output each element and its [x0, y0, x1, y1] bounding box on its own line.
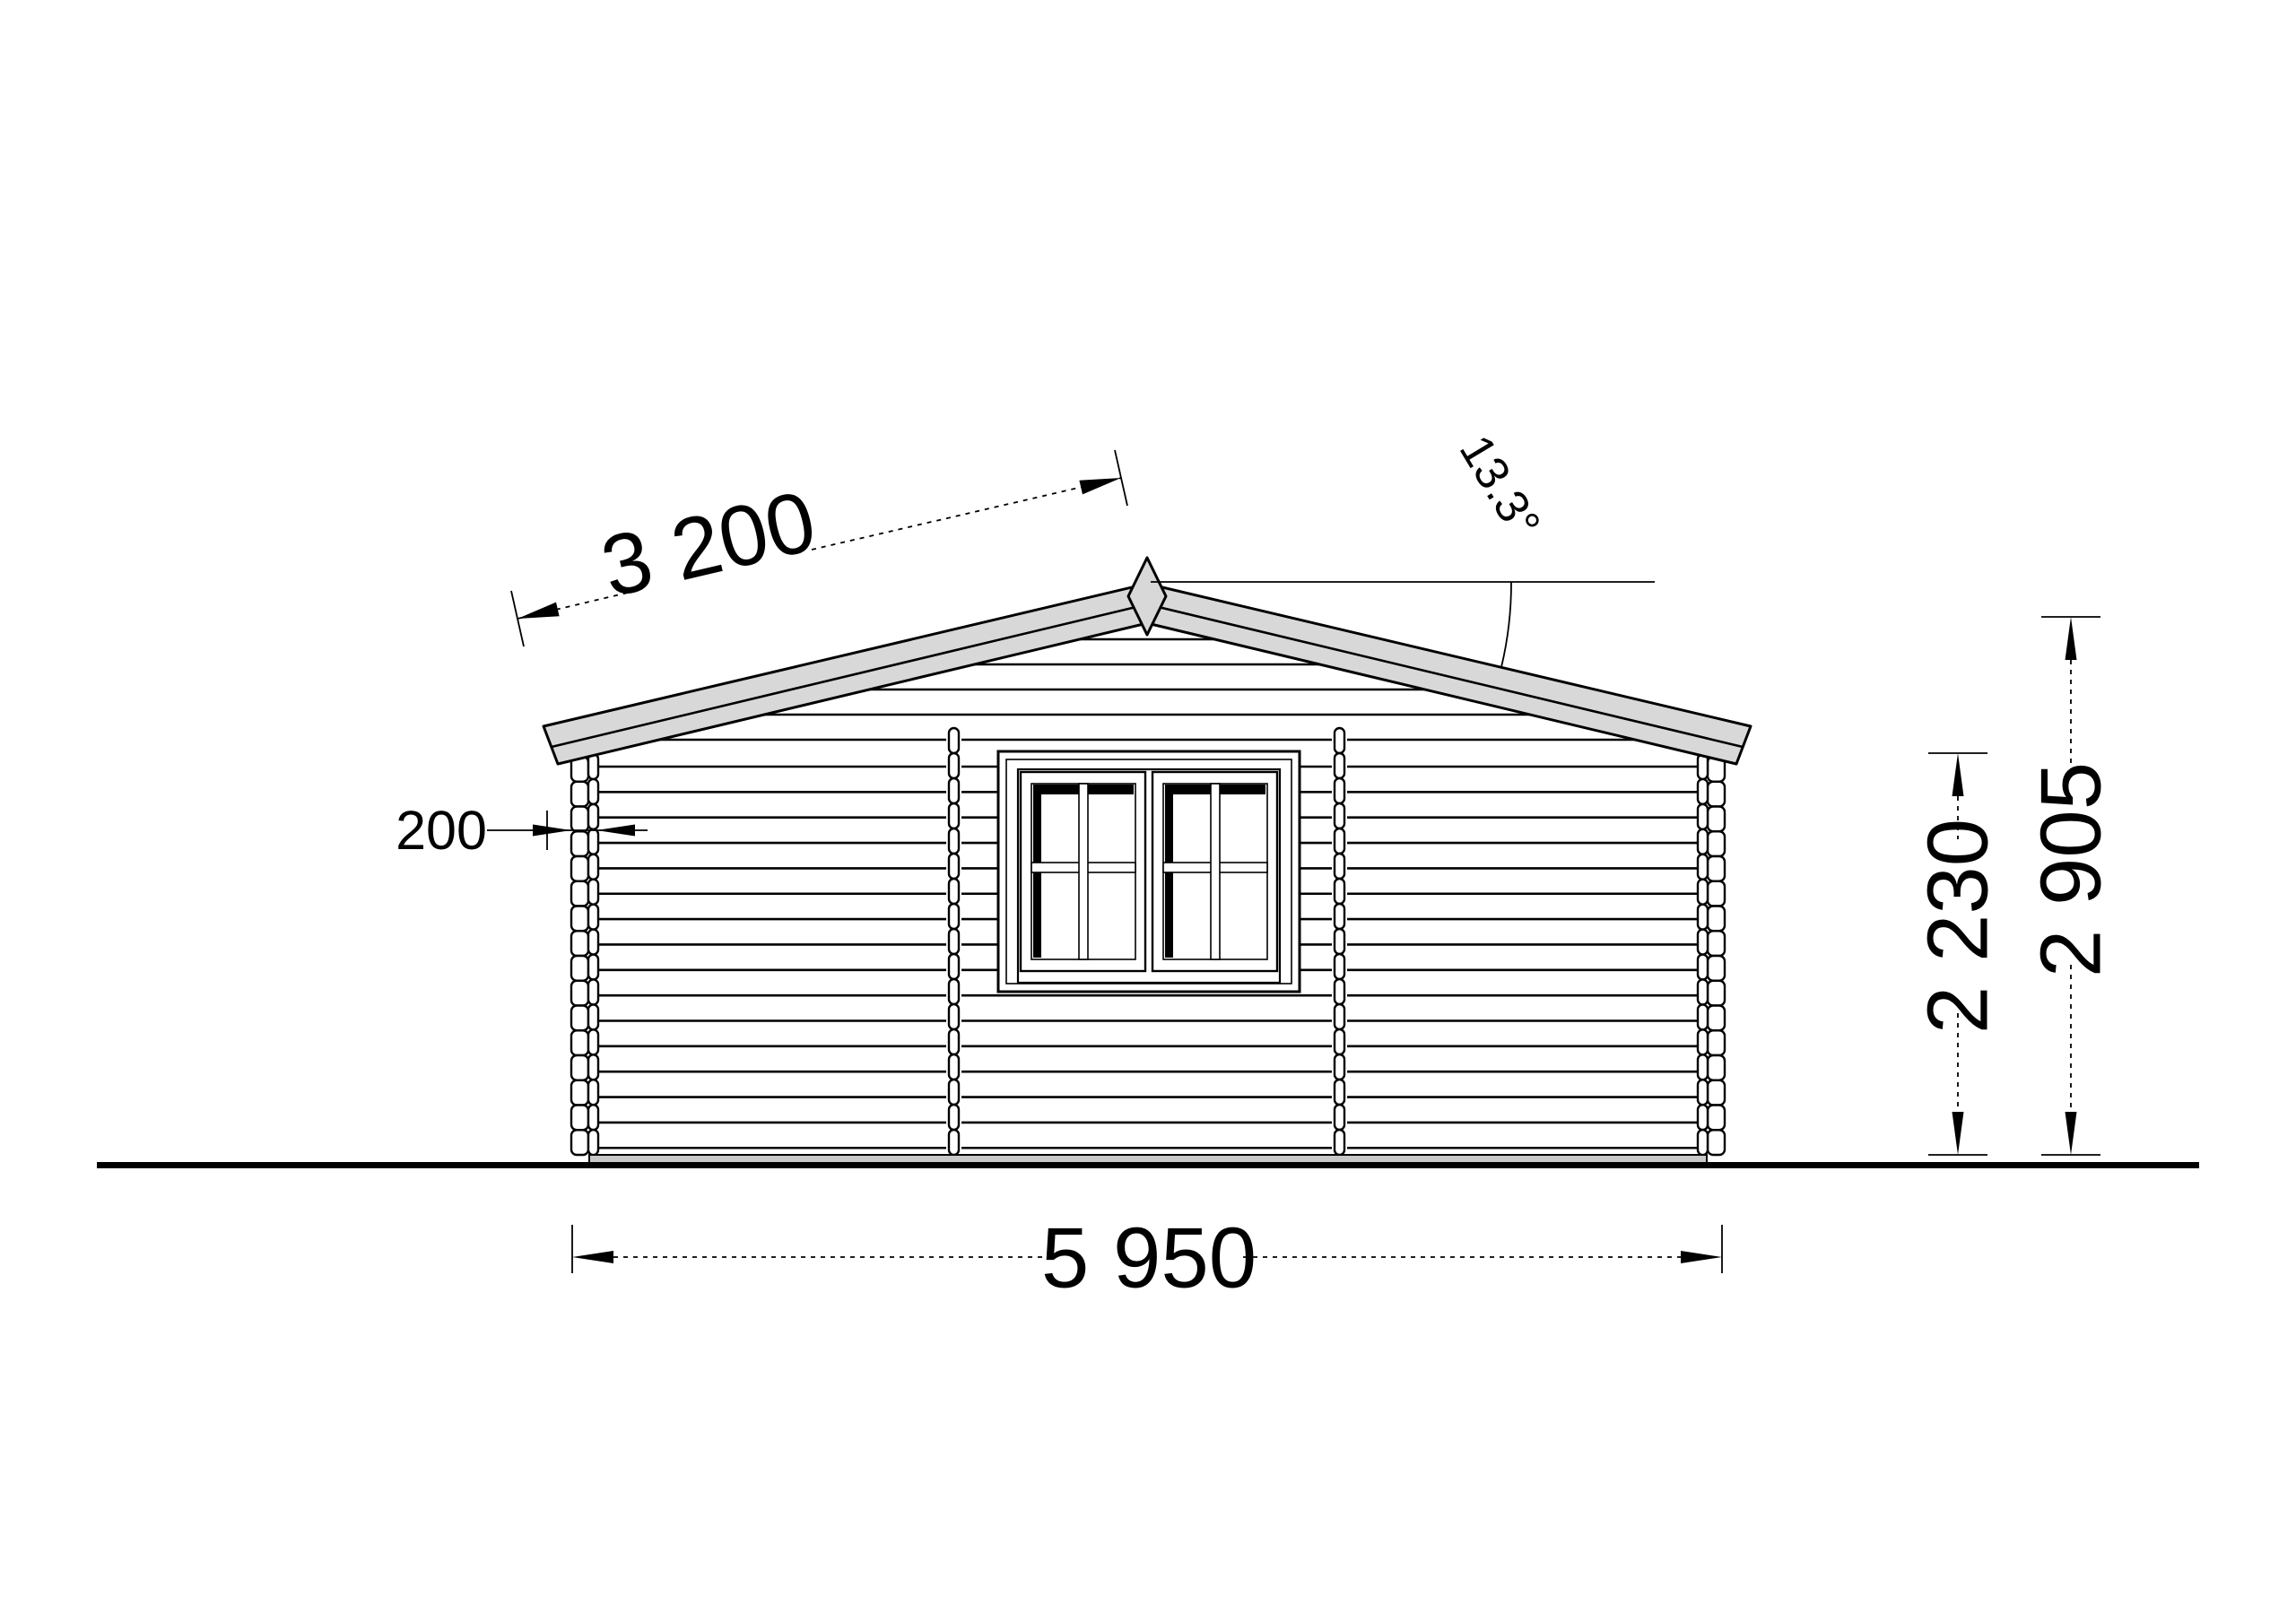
dim-total-height-label: 2 905 — [2023, 762, 2119, 977]
log-end-cap — [1698, 1054, 1708, 1080]
dimension-wall-thickness: 200 — [396, 800, 648, 861]
log-end — [571, 1106, 588, 1131]
dim-slope-length-label: 3 200 — [593, 473, 824, 615]
muntin-vertical — [1211, 784, 1220, 959]
glass-shadow-side — [1165, 785, 1173, 863]
log-end-cap — [1698, 1080, 1708, 1105]
dim-roof-angle-label: 13.3° — [1449, 427, 1551, 547]
log-end — [1708, 1055, 1725, 1080]
log-end — [1708, 956, 1725, 981]
log-end — [1708, 782, 1725, 807]
joint-cap — [949, 1004, 959, 1029]
log-end-cap — [588, 979, 598, 1004]
joint-cap — [1335, 828, 1344, 854]
ground-line — [97, 1162, 2199, 1168]
log-end-cap — [1698, 779, 1708, 804]
log-end-cap — [1698, 804, 1708, 829]
log-end — [1708, 1106, 1725, 1131]
joint-cap — [949, 979, 959, 1004]
log-end-cap — [1698, 1029, 1708, 1054]
left-corner-log-ends — [571, 754, 598, 1155]
glass-shadow-side — [1033, 785, 1041, 863]
log-end — [571, 1130, 588, 1155]
joint-cap — [1335, 778, 1344, 803]
dimension-arrow — [1952, 1112, 1964, 1155]
log-end-cap — [1698, 930, 1708, 955]
dimension-arrow — [572, 1251, 613, 1263]
joint-cap — [949, 1054, 959, 1080]
right-corner-log-ends — [1698, 754, 1725, 1155]
log-end — [571, 1030, 588, 1055]
log-end-cap — [588, 1105, 598, 1130]
dimension-arrow — [1952, 753, 1964, 796]
log-end — [1708, 1130, 1725, 1155]
dimension-arrow — [596, 825, 635, 837]
log-end — [1708, 881, 1725, 906]
log-end-cap — [588, 1004, 598, 1029]
log-end — [1708, 1006, 1725, 1031]
joint-cap — [1335, 954, 1344, 979]
log-end-cap — [1698, 854, 1708, 880]
log-end-cap — [1698, 905, 1708, 930]
angle-arc — [1501, 582, 1511, 667]
dimension-arrow — [517, 603, 560, 619]
log-end-cap — [1698, 1130, 1708, 1155]
joint-cap — [949, 954, 959, 979]
dim-total-width-label: 5 950 — [1041, 1210, 1257, 1306]
joint-cap — [949, 929, 959, 954]
log-end-cap — [588, 754, 598, 779]
joint-cap — [1335, 1029, 1344, 1054]
joint-cap — [1335, 1080, 1344, 1105]
log-end — [571, 782, 588, 807]
dimension-total-height: 2 905 — [2023, 617, 2119, 1155]
joint-cap — [949, 828, 959, 854]
foundation-base — [589, 1155, 1707, 1163]
log-end — [1708, 856, 1725, 881]
log-end — [571, 981, 588, 1006]
joint-cap — [949, 904, 959, 929]
log-end — [571, 906, 588, 932]
glass-shadow-side — [1165, 872, 1173, 958]
log-end-cap — [588, 905, 598, 930]
dimension-wall-height: 2 230 — [1910, 753, 2006, 1155]
joint-cap — [949, 753, 959, 778]
log-end — [571, 956, 588, 981]
log-end — [571, 881, 588, 906]
log-end — [1708, 807, 1725, 832]
log-end-cap — [588, 1029, 598, 1054]
dim-wall-thickness-label: 200 — [396, 800, 487, 861]
joint-cap — [1335, 1130, 1344, 1155]
dimension-arrow — [1079, 478, 1121, 494]
joint-cap — [1335, 1105, 1344, 1130]
joint-cap — [949, 778, 959, 803]
log-end-cap — [588, 829, 598, 854]
log-end-cap — [588, 880, 598, 905]
log-end — [571, 1080, 588, 1106]
drawing-sheet: 3 200 13.3° 200 2 230 2 905 — [0, 0, 2296, 1622]
glass-shadow-side — [1033, 872, 1041, 958]
joint-cap — [949, 1080, 959, 1105]
log-end — [571, 931, 588, 956]
muntin-vertical — [1079, 784, 1088, 959]
log-end-cap — [588, 1130, 598, 1155]
dimension-total-width: 5 950 — [572, 1210, 1722, 1306]
joint-cap — [1335, 979, 1344, 1004]
joint-cap — [949, 728, 959, 753]
joint-cap — [1335, 1054, 1344, 1080]
dim-wall-height-label: 2 230 — [1910, 819, 2006, 1034]
joint-cap — [1335, 803, 1344, 828]
joint-cap — [949, 1105, 959, 1130]
joint-cap — [949, 1029, 959, 1054]
log-end — [1708, 906, 1725, 932]
joint-cap — [1335, 904, 1344, 929]
joint-cap — [1335, 753, 1344, 778]
window — [998, 751, 1300, 992]
log-end-cap — [1698, 880, 1708, 905]
log-end-cap — [1698, 1004, 1708, 1029]
log-end-cap — [588, 1054, 598, 1080]
log-end — [571, 856, 588, 881]
log-end — [571, 1006, 588, 1031]
joint-cap — [949, 803, 959, 828]
log-end-cap — [588, 854, 598, 880]
joint-cap — [1335, 1004, 1344, 1029]
joint-cap — [1335, 929, 1344, 954]
log-end-cap — [588, 779, 598, 804]
log-end — [571, 807, 588, 832]
log-end-cap — [588, 1080, 598, 1105]
log-end-cap — [588, 804, 598, 829]
joint-cap — [1335, 879, 1344, 904]
log-end-cap — [1698, 979, 1708, 1004]
log-end — [1708, 1030, 1725, 1055]
log-end — [1708, 831, 1725, 856]
log-end — [1708, 981, 1725, 1006]
log-end-cap — [1698, 1105, 1708, 1130]
log-end-cap — [588, 955, 598, 980]
log-end — [571, 1055, 588, 1080]
joint-cap — [949, 1130, 959, 1155]
log-end — [1708, 931, 1725, 956]
log-end-cap — [1698, 829, 1708, 854]
dimension-arrow — [2066, 1112, 2077, 1155]
dimension-arrow — [1681, 1251, 1722, 1263]
joint-cap — [1335, 854, 1344, 879]
log-end-cap — [588, 930, 598, 955]
log-end — [1708, 1080, 1725, 1106]
cabin-elevation-drawing: 3 200 13.3° 200 2 230 2 905 — [0, 0, 2296, 1622]
joint-cap — [949, 854, 959, 879]
log-end — [571, 831, 588, 856]
dimension-arrow — [533, 825, 571, 837]
joint-cap — [1335, 728, 1344, 753]
dimension-arrow — [2066, 617, 2077, 660]
joint-cap — [949, 879, 959, 904]
log-end-cap — [1698, 955, 1708, 980]
